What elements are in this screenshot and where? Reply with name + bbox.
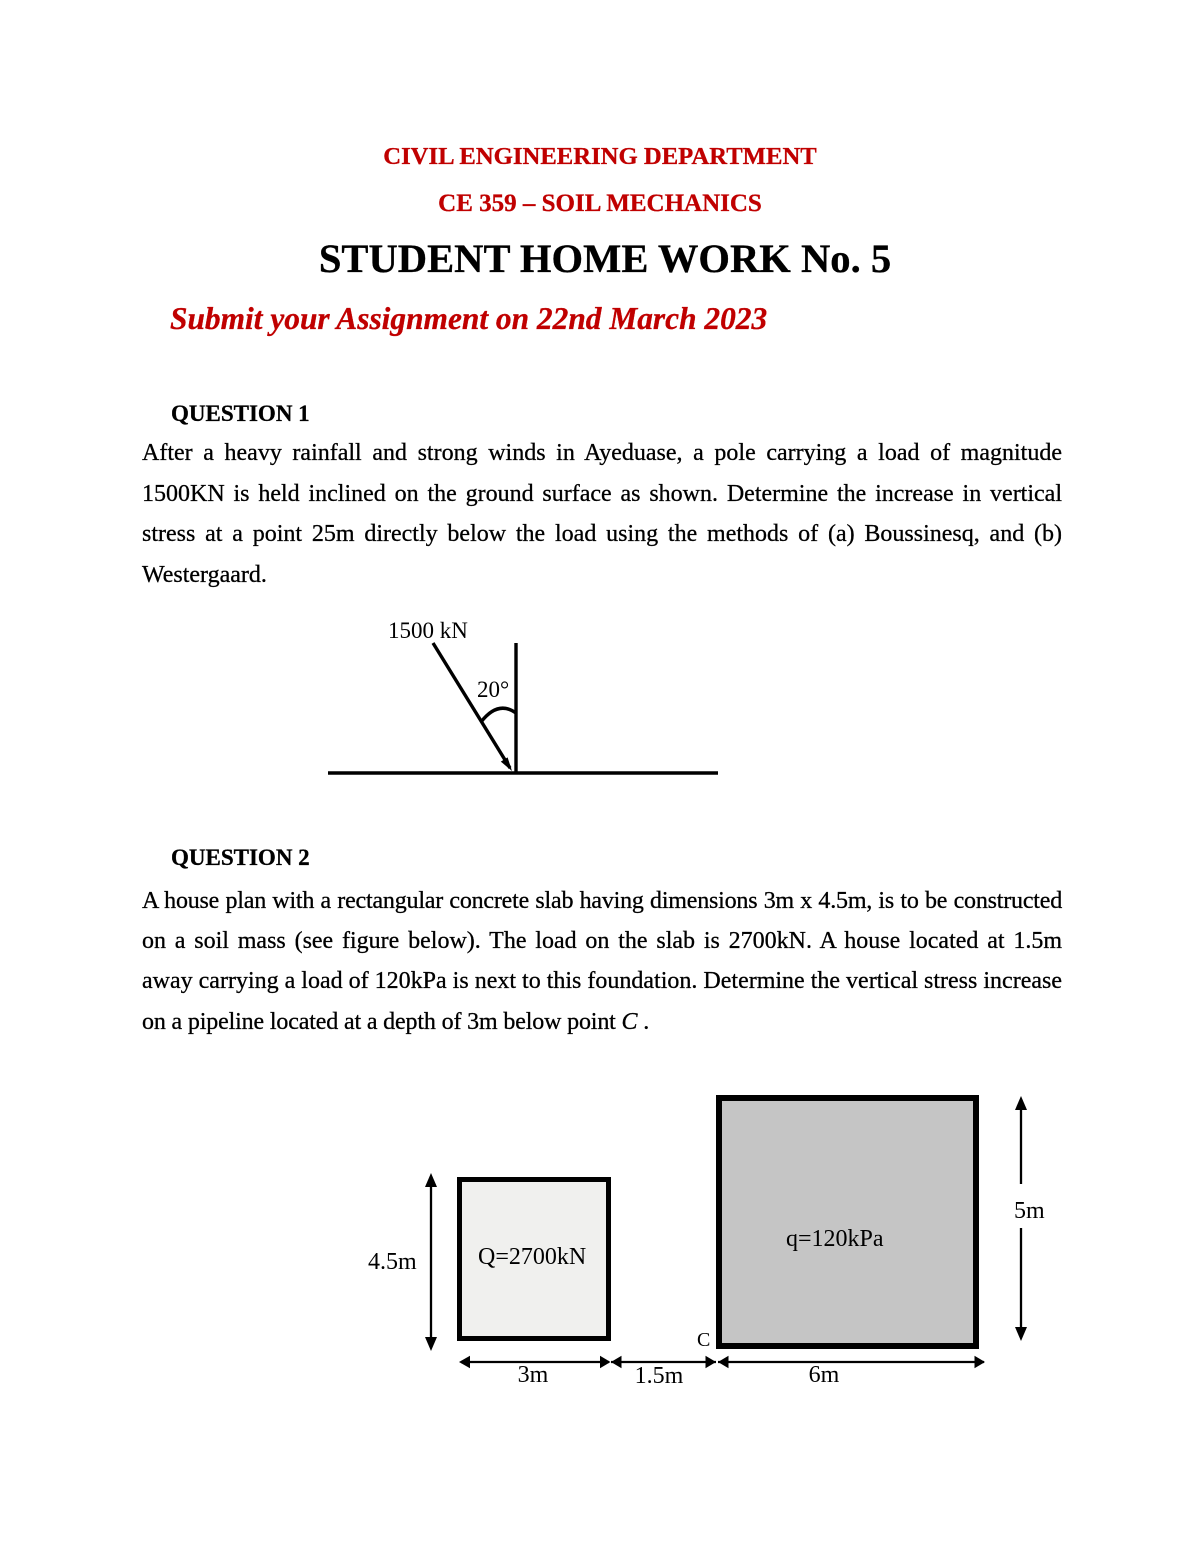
svg-text:1.5m: 1.5m	[635, 1363, 684, 1389]
svg-text:6m: 6m	[809, 1362, 840, 1388]
svg-text:1500 kN: 1500 kN	[388, 618, 468, 643]
svg-text:q=120kPa: q=120kPa	[786, 1226, 884, 1252]
svg-text:3m: 3m	[518, 1362, 549, 1388]
svg-text:5m: 5m	[1014, 1198, 1045, 1224]
svg-text:20°: 20°	[477, 677, 509, 702]
svg-text:Q=2700kN: Q=2700kN	[478, 1244, 586, 1270]
svg-text:4.5m: 4.5m	[368, 1249, 417, 1275]
svg-text:C: C	[697, 1329, 710, 1351]
